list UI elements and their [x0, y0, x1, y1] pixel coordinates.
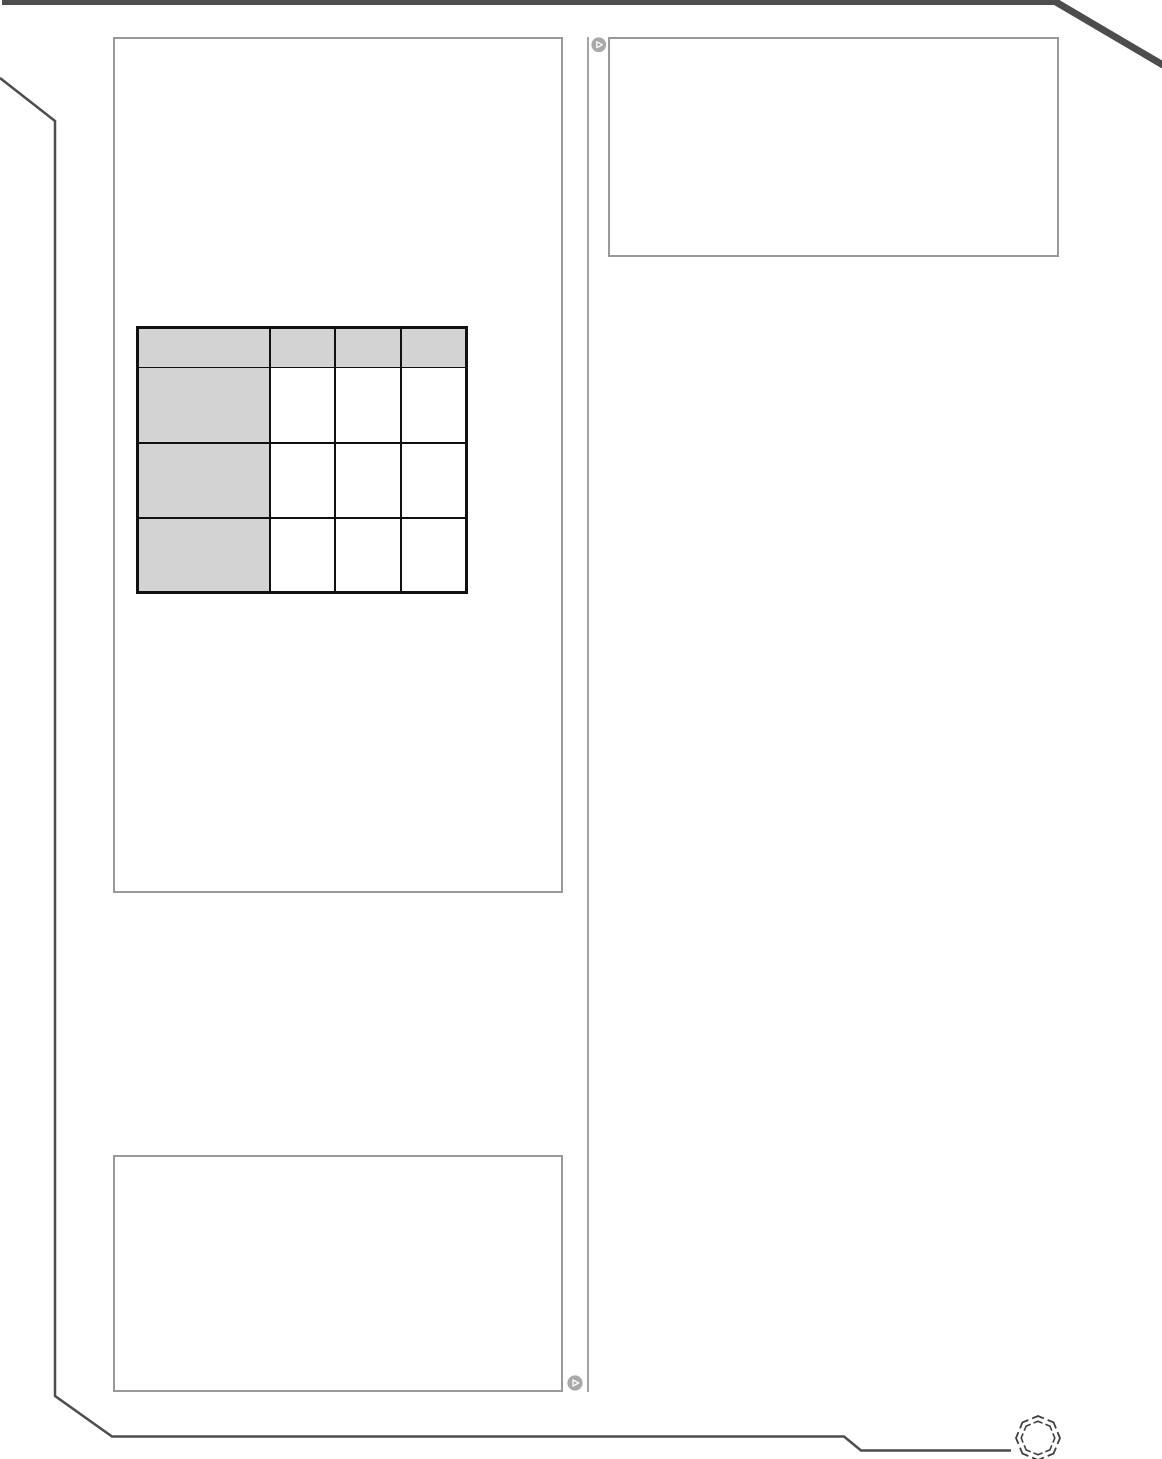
top-bar: [2, 0, 1060, 5]
table-header-cell: [138, 328, 271, 368]
octagon-ring-outer: [1016, 1416, 1060, 1459]
table-cell: [335, 368, 401, 443]
table-cell: [401, 368, 467, 443]
octagon-ring-inner: [1021, 1421, 1055, 1455]
play-icon-bottom[interactable]: [567, 1375, 583, 1391]
table-cell: [270, 443, 335, 518]
table-row-header-cell: [138, 443, 271, 518]
table-header-cell: [335, 328, 401, 368]
table-cell: [401, 518, 467, 593]
table-row-header-cell: [138, 368, 271, 443]
bottom-content-box: [113, 1155, 563, 1392]
table-cell: [270, 518, 335, 593]
top-right-content-box: [608, 37, 1059, 257]
table-header-cell: [401, 328, 467, 368]
table-cell: [335, 443, 401, 518]
column-divider: [587, 37, 589, 1392]
table-cell: [335, 518, 401, 593]
worksheet-table: [136, 326, 468, 594]
table-header-cell: [270, 328, 335, 368]
table-row: [138, 518, 467, 593]
worksheet-page: [0, 0, 1162, 1459]
table-cell: [401, 443, 467, 518]
table-row-header-cell: [138, 518, 271, 593]
play-icon-top[interactable]: [591, 37, 607, 53]
table-row: [138, 368, 467, 443]
table-cell: [270, 368, 335, 443]
table-row: [138, 443, 467, 518]
table-header-row: [138, 328, 467, 368]
octagon-ring-icon: [1016, 1416, 1060, 1459]
top-right-corner-diagonal: [1055, 2, 1162, 69]
